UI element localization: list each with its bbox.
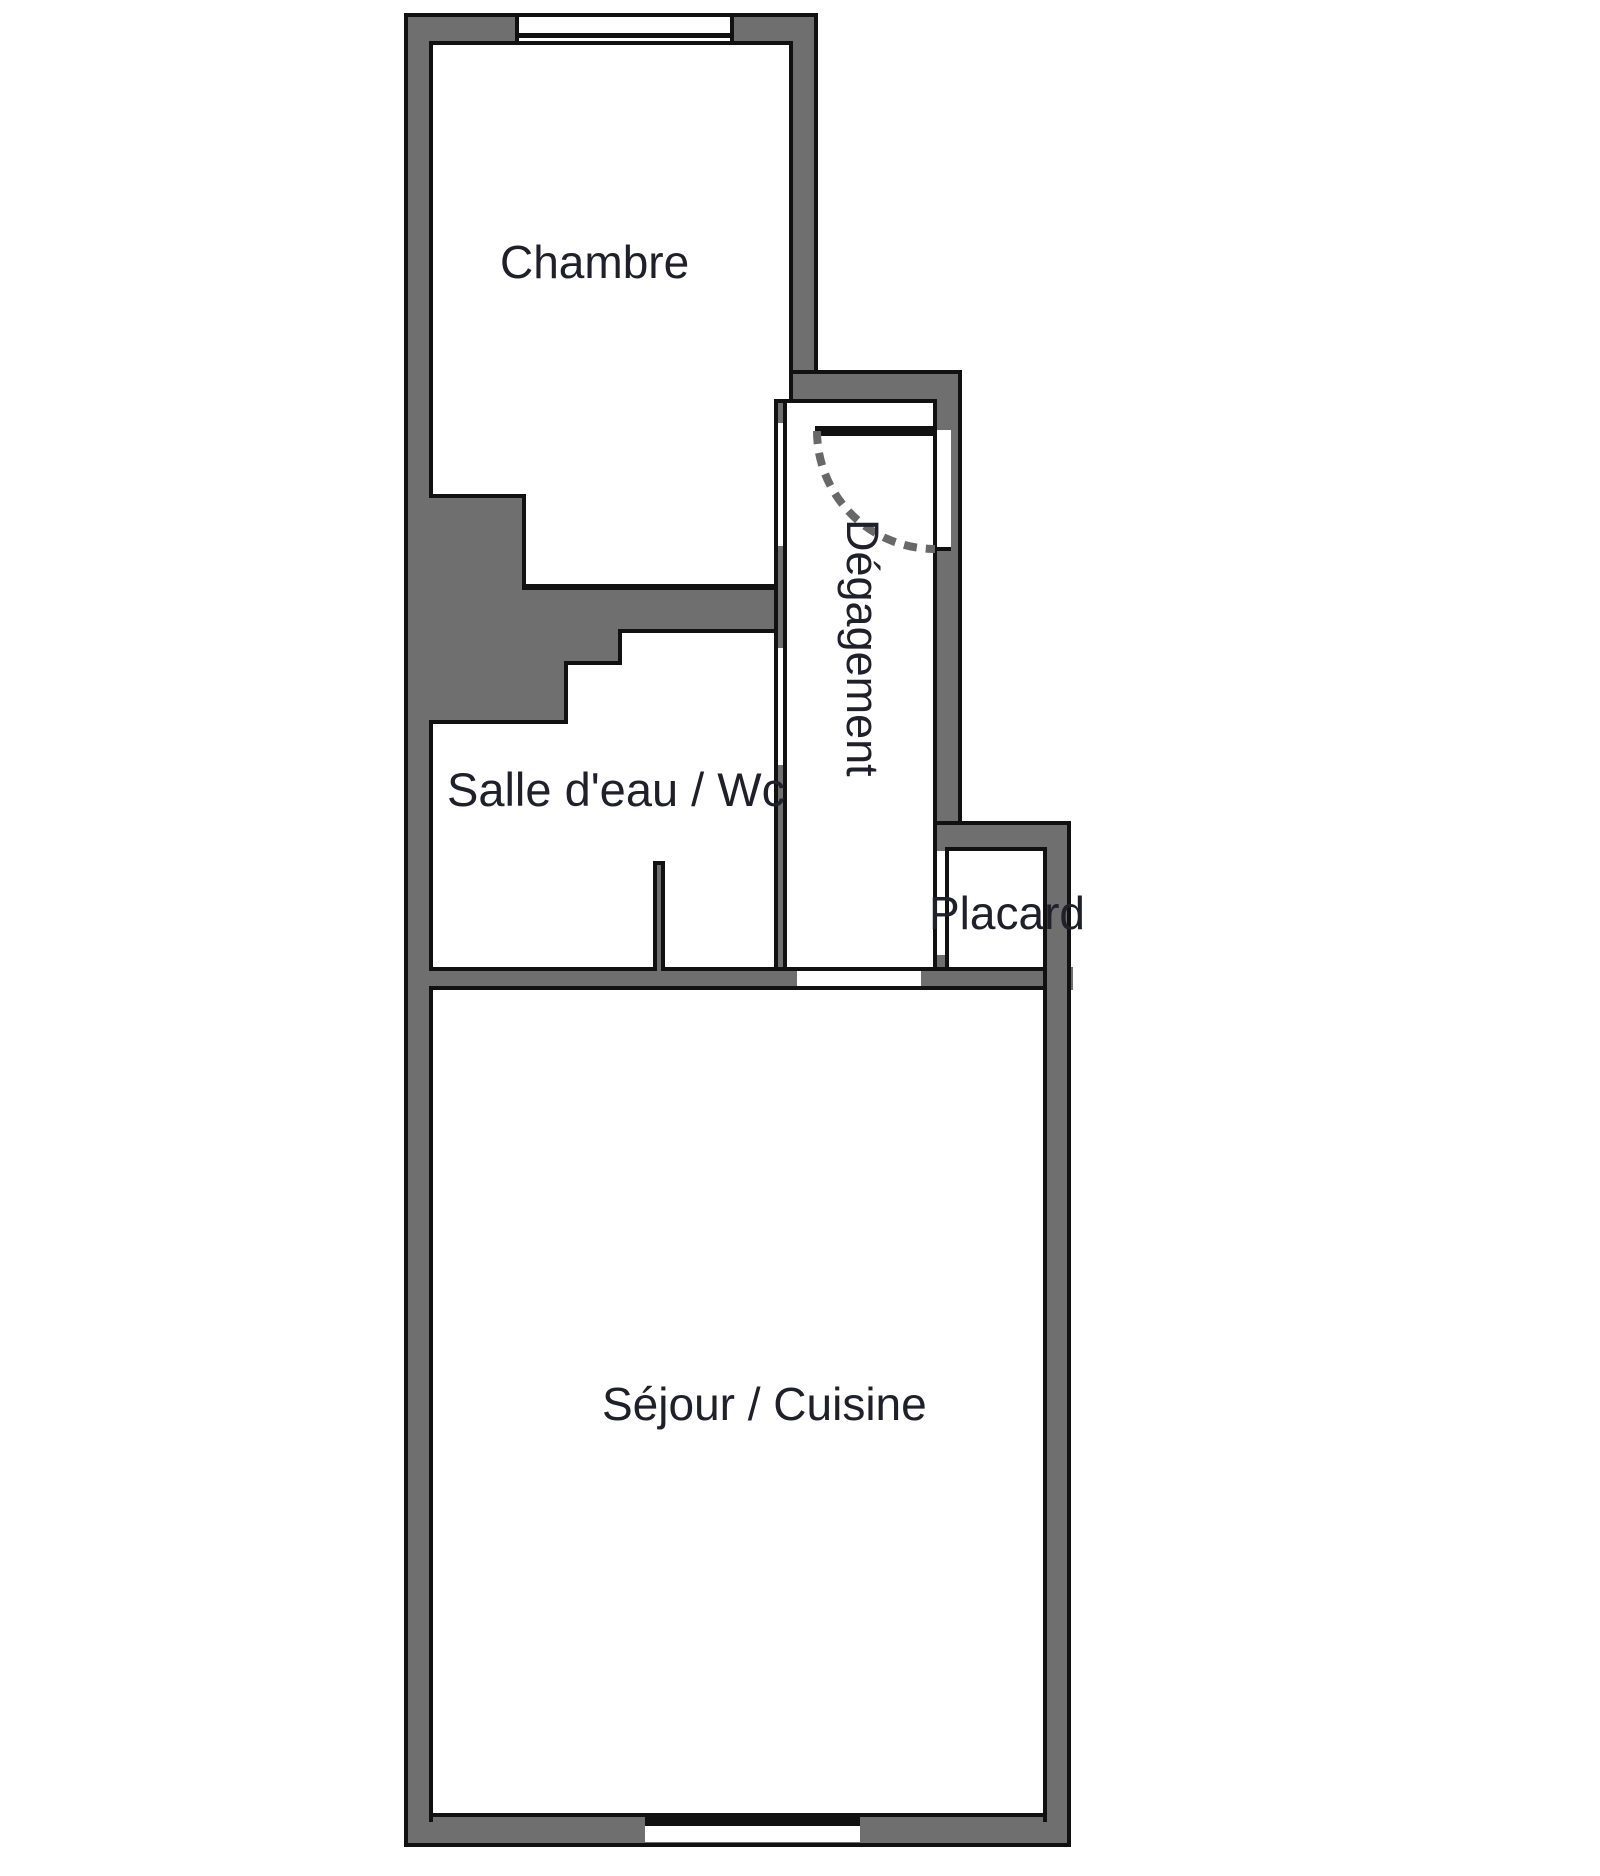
svg-text:Placard: Placard bbox=[929, 887, 1085, 939]
svg-text:Dégagement: Dégagement bbox=[837, 519, 888, 777]
svg-text:Salle d'eau / Wc: Salle d'eau / Wc bbox=[447, 763, 785, 816]
svg-text:Séjour / Cuisine: Séjour / Cuisine bbox=[602, 1378, 927, 1430]
svg-text:Chambre: Chambre bbox=[500, 236, 689, 288]
